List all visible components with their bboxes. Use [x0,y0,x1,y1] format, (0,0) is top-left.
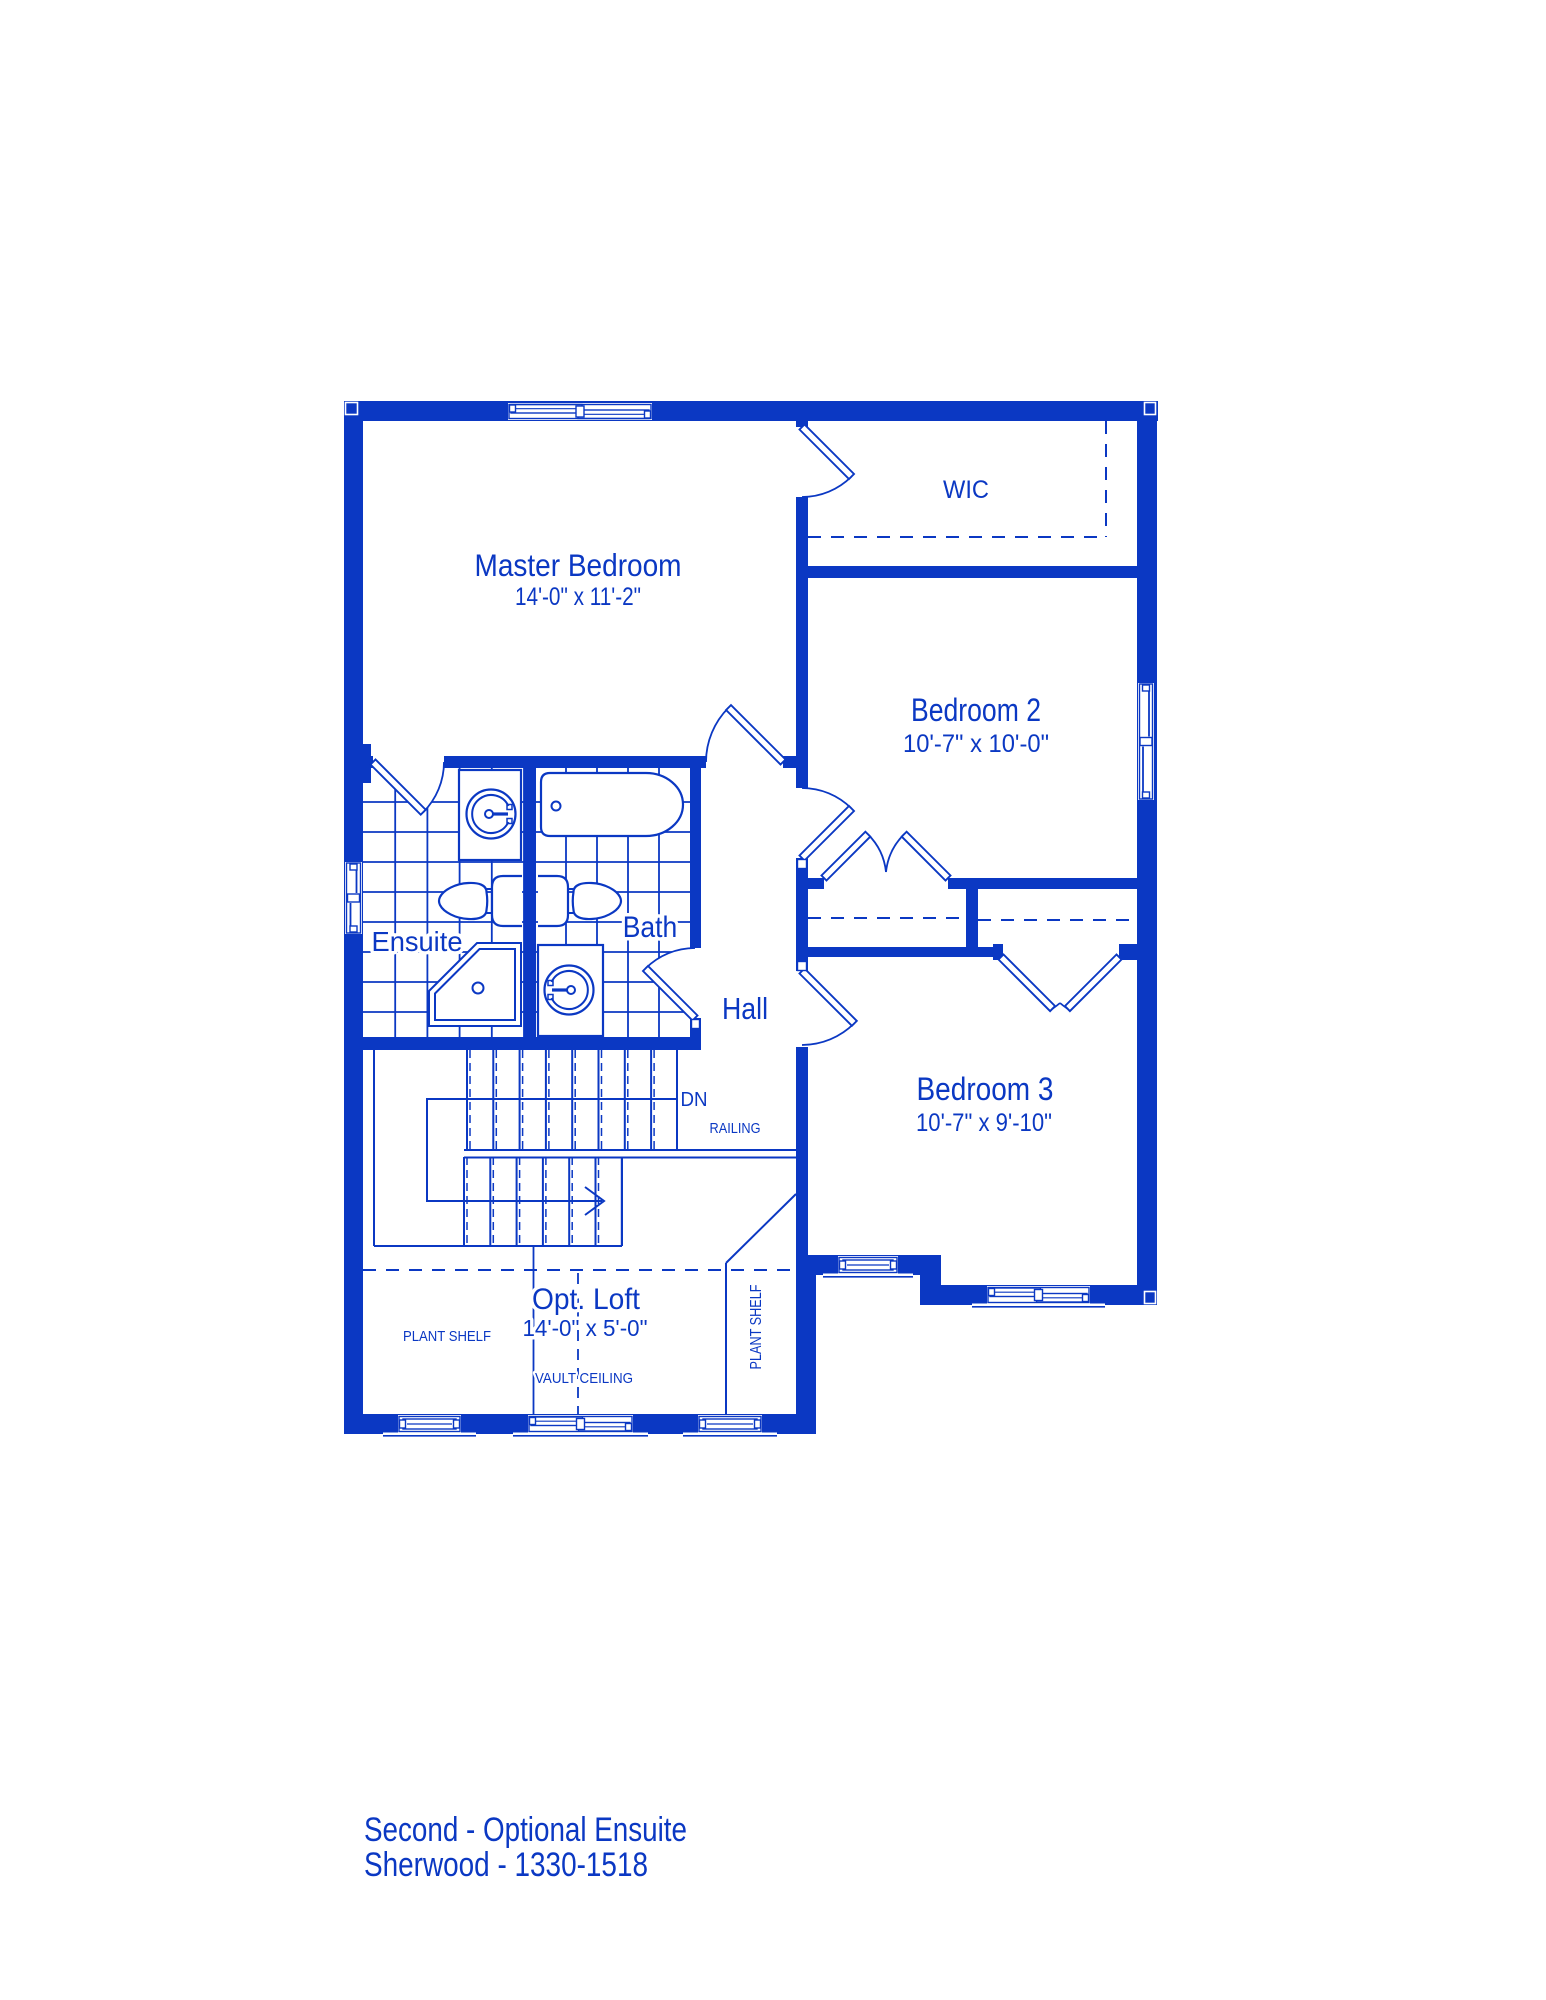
svg-text:Bedroom 2: Bedroom 2 [911,692,1041,728]
svg-text:VAULT CEILING: VAULT CEILING [535,1370,633,1387]
svg-text:14'-0" x 11'-2": 14'-0" x 11'-2" [515,583,641,611]
svg-text:Ensuite: Ensuite [372,926,463,957]
svg-text:Sherwood - 1330-1518: Sherwood - 1330-1518 [364,1846,648,1884]
svg-text:Hall: Hall [722,991,768,1026]
svg-text:Bedroom 3: Bedroom 3 [917,1071,1054,1107]
svg-text:Opt. Loft: Opt. Loft [532,1283,641,1316]
svg-text:10'-7" x 10'-0": 10'-7" x 10'-0" [903,730,1049,758]
svg-text:RAILING: RAILING [710,1120,761,1137]
svg-text:Bath: Bath [623,911,678,944]
svg-text:PLANT SHELF: PLANT SHELF [403,1328,491,1345]
svg-text:Second - Optional Ensuite: Second - Optional Ensuite [364,1811,687,1849]
svg-text:PLANT SHELF: PLANT SHELF [748,1284,765,1369]
svg-text:14'-0" x 5'-0": 14'-0" x 5'-0" [523,1315,648,1341]
svg-text:DN: DN [681,1089,708,1111]
svg-text:Master Bedroom: Master Bedroom [475,547,682,583]
svg-text:WIC: WIC [943,476,989,504]
svg-text:10'-7" x 9'-10": 10'-7" x 9'-10" [916,1109,1052,1137]
